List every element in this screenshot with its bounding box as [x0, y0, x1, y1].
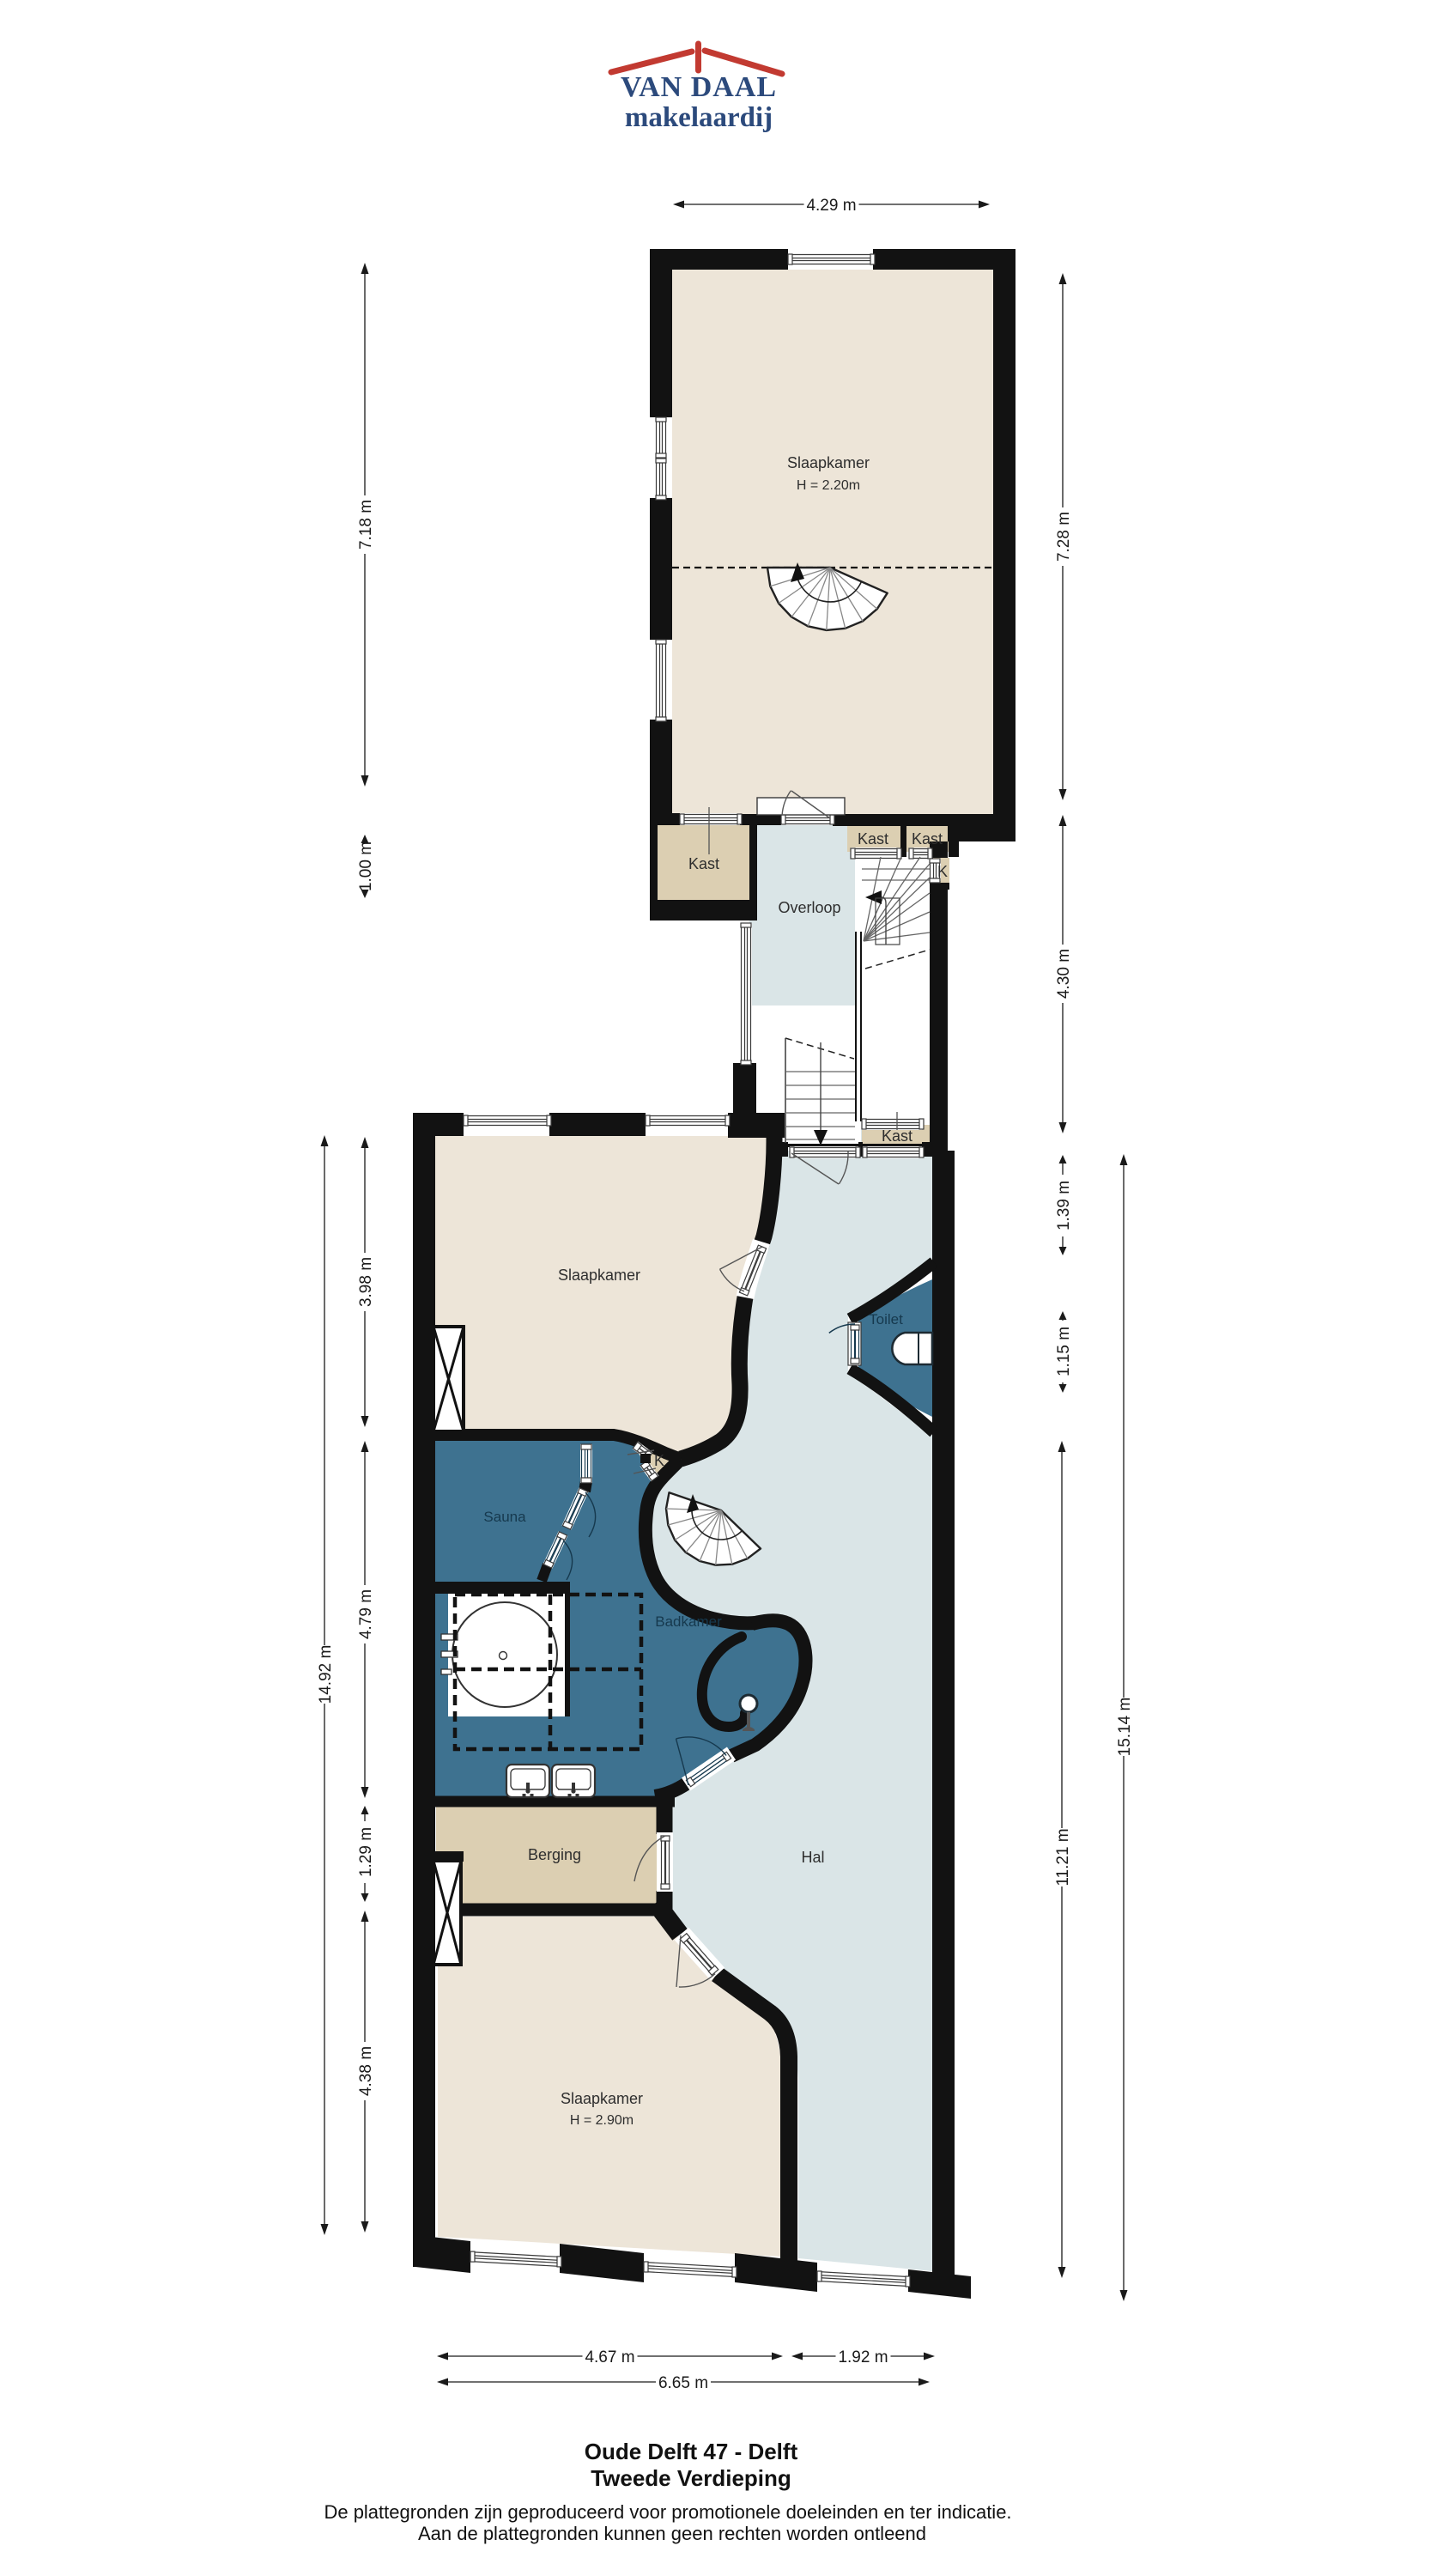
- svg-text:Overloop: Overloop: [778, 899, 840, 916]
- svg-text:Kast: Kast: [858, 830, 888, 848]
- svg-text:Slaapkamer: Slaapkamer: [558, 1267, 640, 1284]
- svg-text:K: K: [654, 1452, 664, 1469]
- svg-text:Kast: Kast: [912, 830, 943, 848]
- svg-text:H = 2.90m: H = 2.90m: [570, 2113, 634, 2128]
- svg-text:1.15 m: 1.15 m: [1055, 1327, 1073, 1376]
- svg-text:De plattegronden zijn geproduc: De plattegronden zijn geproduceerd voor …: [324, 2501, 1011, 2523]
- svg-text:4.79 m: 4.79 m: [357, 1589, 375, 1639]
- svg-text:Berging: Berging: [528, 1846, 581, 1863]
- svg-text:1.29 m: 1.29 m: [357, 1827, 375, 1877]
- svg-text:4.38 m: 4.38 m: [357, 2046, 375, 2096]
- svg-text:Slaapkamer: Slaapkamer: [787, 454, 870, 471]
- svg-text:Tweede Verdieping: Tweede Verdieping: [591, 2465, 791, 2491]
- svg-text:4.67 m: 4.67 m: [585, 2348, 634, 2366]
- svg-text:Toilet: Toilet: [869, 1311, 903, 1327]
- svg-text:Aan de plattegronden kunnen ge: Aan de plattegronden kunnen geen rechten…: [418, 2523, 926, 2544]
- svg-text:3.98 m: 3.98 m: [357, 1257, 375, 1307]
- svg-text:Hal: Hal: [801, 1849, 824, 1866]
- svg-text:4.29 m: 4.29 m: [806, 197, 856, 215]
- svg-text:1.39 m: 1.39 m: [1055, 1181, 1073, 1230]
- svg-text:Sauna: Sauna: [483, 1509, 526, 1525]
- svg-text:6.65 m: 6.65 m: [658, 2374, 708, 2392]
- svg-text:15.14 m: 15.14 m: [1116, 1698, 1134, 1757]
- svg-text:VAN DAAL: VAN DAAL: [621, 71, 777, 103]
- svg-text:4.30 m: 4.30 m: [1055, 949, 1073, 999]
- svg-text:Slaapkamer: Slaapkamer: [561, 2090, 643, 2107]
- svg-text:Kast: Kast: [688, 855, 719, 872]
- svg-text:Badkamer: Badkamer: [655, 1613, 722, 1630]
- svg-text:11.21 m: 11.21 m: [1054, 1828, 1072, 1886]
- svg-text:7.18 m: 7.18 m: [357, 500, 375, 550]
- svg-text:7.28 m: 7.28 m: [1055, 512, 1073, 562]
- svg-text:H = 2.20m: H = 2.20m: [797, 478, 860, 493]
- svg-text:makelaardij: makelaardij: [625, 102, 773, 133]
- svg-text:K: K: [937, 863, 948, 880]
- svg-text:1.00 m: 1.00 m: [357, 841, 375, 891]
- svg-text:14.92 m: 14.92 m: [317, 1645, 335, 1704]
- svg-text:Oude Delft 47 - Delft: Oude Delft 47 - Delft: [585, 2439, 798, 2464]
- svg-text:1.92 m: 1.92 m: [838, 2348, 888, 2366]
